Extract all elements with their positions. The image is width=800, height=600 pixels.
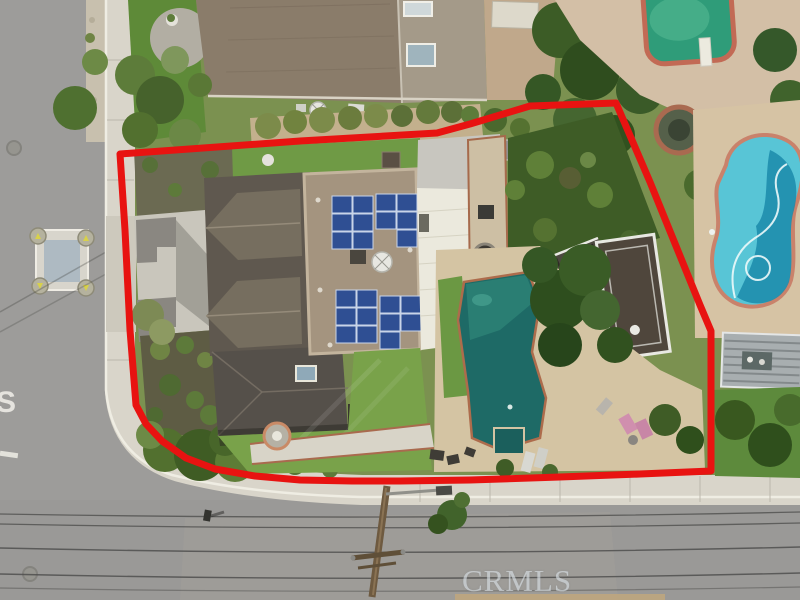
chimney [382,152,400,168]
neighbor-roof-brown [196,0,402,103]
road-marking-letter: S [0,386,16,419]
skylight [404,2,432,16]
curb-strip [455,594,665,600]
rooftop-ac-unit [350,250,366,264]
neighbor-east-pool-area [693,100,800,338]
bbq-grill [478,205,494,219]
hedge-shrub [255,113,281,139]
neighbor-shed [492,1,539,29]
streetlight-fixture [436,486,452,496]
aerial-scene: S [0,0,800,600]
southeast-lawn [712,387,800,478]
diving-board [699,38,712,67]
patio-table [628,435,638,445]
parkway-shrub [85,33,95,43]
skylight [296,366,316,381]
street-overhanging-tree [53,86,97,130]
patio-cover-opening [419,214,429,232]
satellite-dish [262,154,274,166]
manhole-cover [7,141,21,155]
aerial-photo: S [0,0,800,600]
neighbor-pergola [721,333,800,390]
spa-steps [494,428,524,454]
pergola-opening [742,351,773,370]
asphalt-patch [180,512,618,600]
skylight [407,44,435,66]
